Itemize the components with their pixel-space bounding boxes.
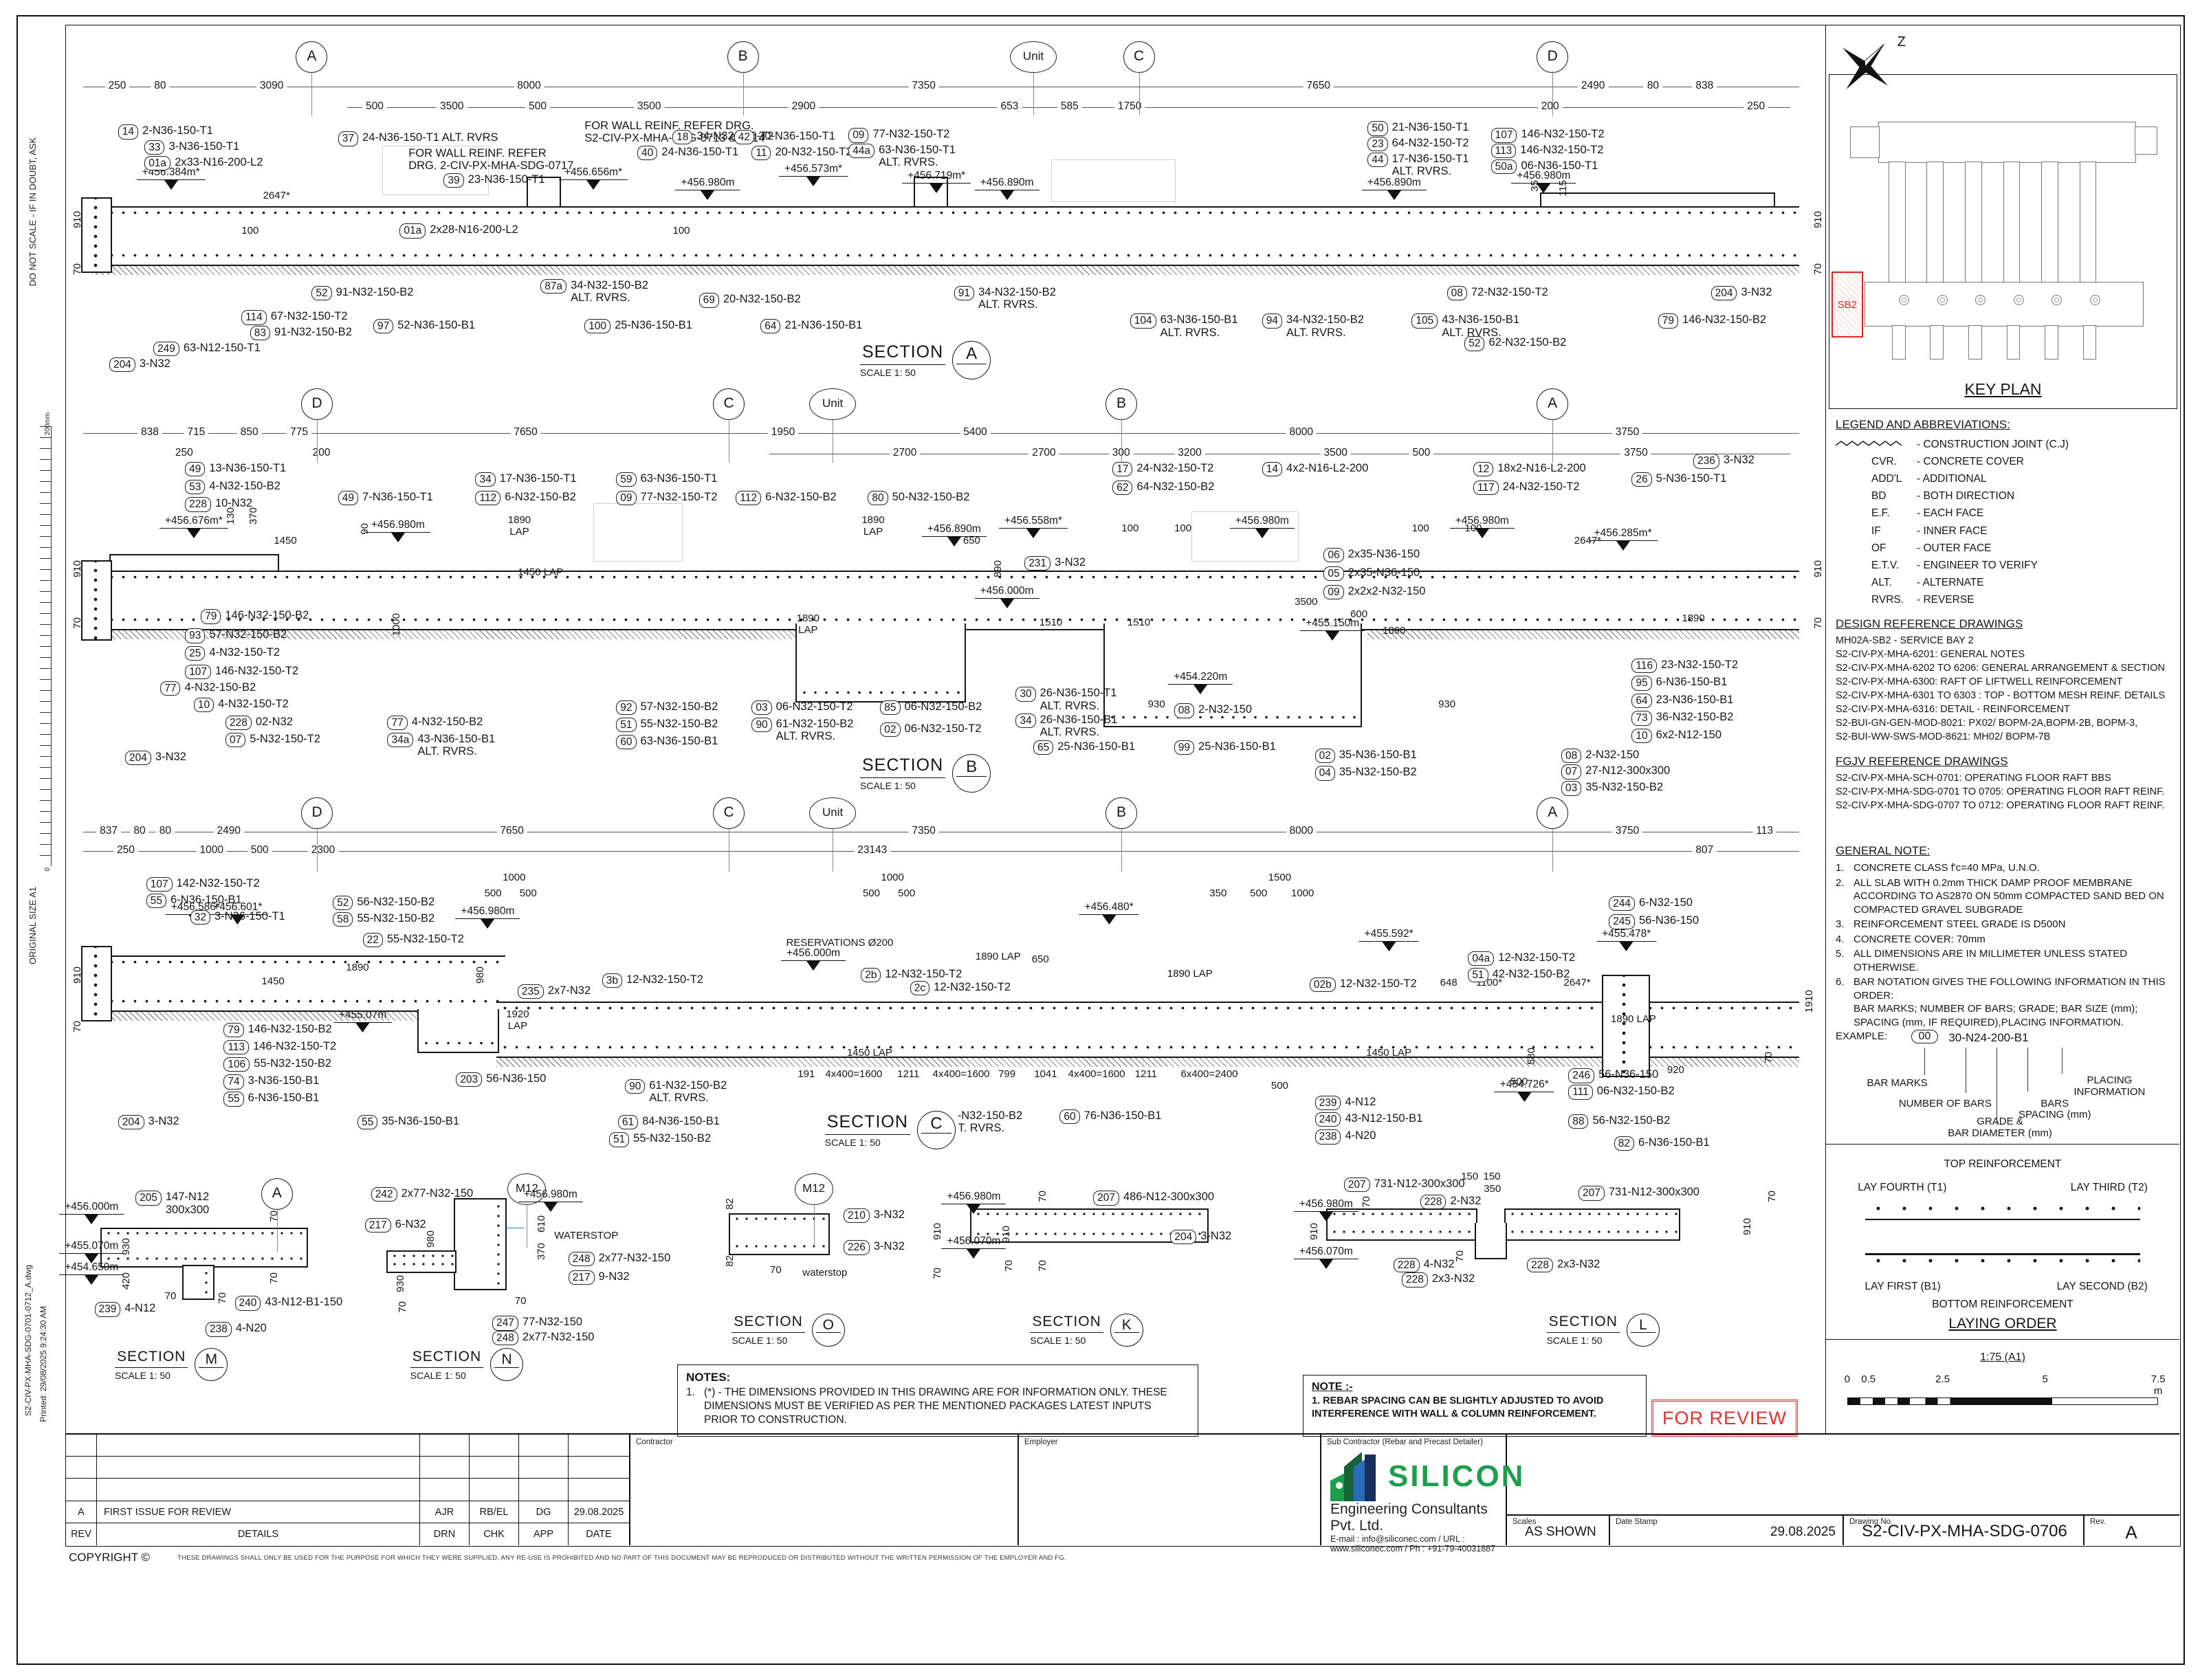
revision-table: A FIRST ISSUE FOR REVIEW AJR RB/EL DG 29… — [65, 1433, 630, 1545]
sb2-highlight: SB2 — [1831, 272, 1864, 338]
rebar-callout: 0235-N36-150-B1 — [1315, 749, 1417, 763]
rebar-callout: 6525-N36-150-B1 — [1033, 740, 1135, 755]
for-review-stamp: FOR REVIEW — [1651, 1400, 1798, 1437]
dimension-text: 799 — [998, 1069, 1015, 1081]
dimension-text: WATERSTOP — [554, 1230, 618, 1242]
dimension-text: 1890 LAP — [508, 515, 531, 538]
dimension-text: 1890 LAP — [1611, 1014, 1656, 1026]
dimension-text: 610 — [536, 1215, 548, 1233]
ruler-top-label: 200mm — [44, 412, 52, 435]
reference-line: S2-CIV-PX-MHA-SDG-0707 TO 0712: OPERATIN… — [1836, 799, 2178, 813]
dimension-text: 150 — [1483, 1171, 1500, 1183]
example-spacing: BARS SPACING (mm) — [2018, 1098, 2091, 1121]
rebar-callout: 207731-N12-300x300 — [1578, 1186, 1699, 1200]
dimension-text: 70 — [1813, 263, 1825, 275]
elevation-marker: +456.980m — [941, 1191, 1006, 1214]
rebar-callout: 062x35-N36-150 — [1323, 548, 1420, 562]
reference-line: S2-CIV-PX-MHA-6300: RAFT OF LIFTWELL REI… — [1836, 675, 2178, 689]
rebar-callout: 2282x3-N32 — [1402, 1272, 1475, 1287]
rebar-callout: 5155-N32-150-B2 — [616, 718, 718, 732]
dimension-text: 70 — [1361, 1196, 1373, 1208]
rev-value: A — [2090, 1522, 2172, 1543]
rebar-callout: 142-N36-150-T1 — [118, 124, 213, 139]
dimension-text: 500 — [1250, 888, 1267, 900]
dimension-text: 500 — [1271, 1081, 1288, 1092]
legend-item: CVR.- CONCRETE COVER — [1836, 453, 2174, 470]
dimension-text: 100 — [1412, 523, 1429, 535]
rebar-callout: 2179-N32 — [569, 1270, 630, 1285]
rebar-callout: 2394-N12 — [1315, 1096, 1376, 1110]
rebar-callout: 0977-N32-150-T2 — [616, 491, 717, 505]
rebar-callout: 9257-N32-150-B2 — [616, 700, 718, 715]
rebar-callout: 7336-N32-150-B2 — [1631, 711, 1733, 725]
dimension-text: 648 — [1440, 977, 1457, 989]
rebar-callout: 5262-N32-150-B2 — [1464, 336, 1566, 351]
dimension-text: 70 — [72, 617, 84, 629]
dimension-text: 1500 — [1268, 872, 1291, 884]
key-plan-title: KEY PLAN — [1829, 380, 2177, 399]
bar-code: 30-N24-200-B1 — [1948, 1031, 2028, 1045]
section-l-title: SECTIONSCALE 1: 50 L — [1544, 1312, 1662, 1348]
drawing-sheet: DO NOT SCALE - IF IN DOUBT, ASK 200mm 0 … — [0, 0, 2200, 1680]
rebar-callout: 2282-N32 — [1420, 1195, 1482, 1209]
rebar-callout: 6076-N36-150-B1 — [1059, 1109, 1161, 1124]
rebar-callout: 1126-N32-150-B2 — [736, 491, 836, 505]
subcontractor-label: Sub Contractor (Rebar and Precast Detail… — [1327, 1438, 1483, 1446]
copyright-row: COPYRIGHT © THESE DRAWINGS SHALL ONLY BE… — [69, 1551, 1650, 1565]
dimension-text: 70 — [72, 1021, 84, 1032]
reference-line: S2-CIV-PX-MHA-SDG-0701 TO 0705: OPERATIN… — [1836, 785, 2178, 799]
grid-bubble: B — [1105, 388, 1137, 420]
scale-bar-block: 1:75 (A1) 00.52.557.5 m — [1826, 1338, 2179, 1433]
legend-item: BD- BOTH DIRECTION — [1836, 487, 2174, 505]
dimension-text: 930 — [395, 1275, 407, 1292]
dimension-text: 3500 — [1295, 597, 1317, 608]
dimension-text: 2647* — [263, 190, 290, 202]
rebar-callout: 2c12-N32-150-T2 — [910, 981, 1011, 995]
example-placing: PLACING INFORMATION — [2073, 1075, 2145, 1098]
grid-bubble: C — [1123, 41, 1155, 73]
elevation-marker: +456.890m — [1362, 177, 1427, 200]
reference-line: S2-CIV-PX-MHA-6301 TO 6303 : TOP - BOTTO… — [1836, 689, 2178, 703]
raft-band — [91, 571, 1798, 630]
bar-notation-example: 00 30-N24-200-B1 BAR MARKS NUMBER OF BAR… — [1836, 1030, 2178, 1144]
dimension-text: 1450 LAP — [1366, 1048, 1411, 1059]
rebar-callout: 052x35-N36-150 — [1323, 566, 1420, 581]
dimension-text: 1890 LAP — [1167, 969, 1213, 980]
detail-section-n: M12 +456.980m 2422x77-N32-1502176-N32248… — [357, 1169, 715, 1416]
rebar-callout: 2446-N32-150 — [1609, 896, 1693, 911]
rebar-callout: 0872-N32-150-T2 — [1447, 286, 1548, 300]
edge-file-name: S2-CIV-PX-MHA-SDG-0701-0712_A.dwg — [23, 1265, 33, 1416]
dimension-text: 500 — [898, 888, 915, 900]
rebar-callout: 79146-N32-150-B2 — [201, 609, 309, 623]
rebar-callout: 6423-N36-150-B1 — [1631, 694, 1733, 708]
dimension-text: 70 — [1763, 1052, 1775, 1063]
rebar-callout: 497-N36-150-T1 — [338, 491, 433, 505]
scale-bar — [1847, 1397, 2158, 1405]
grid-bubble: Unit — [809, 388, 856, 420]
dimension-text: 70 — [269, 1272, 280, 1284]
grid-bubble: A — [296, 41, 327, 73]
rebar-callout: 9134-N32-150-B2 ALT. RVRS. — [954, 286, 1056, 311]
raft-band — [91, 206, 1798, 266]
dimension-text: 70 — [1037, 1191, 1049, 1202]
scale-ratio: 1:75 (A1) — [1980, 1351, 2025, 1364]
dimension-text: 100 — [241, 225, 258, 237]
section-k-title: SECTIONSCALE 1: 50 K — [1027, 1312, 1145, 1348]
dimension-text: 1890 — [1682, 613, 1704, 625]
rebar-callout: FOR WALL REINF. REFER DRG. 2-CIV-PX-MHA-… — [408, 147, 573, 173]
scale-tick: 7.5 m — [2148, 1374, 2169, 1397]
ruler-bottom-label: 0 — [44, 867, 52, 872]
grid-bubble: B — [727, 41, 759, 73]
rebar-callout: 22802-N32 — [225, 716, 293, 730]
legend-item: IF- INNER FACE — [1836, 522, 2174, 540]
scale-tick: 2.5 — [1935, 1374, 1950, 1386]
rebar-callout: 22810-N32 — [185, 497, 252, 511]
dimension-text: 920 — [1667, 1065, 1684, 1076]
legend-item: ADD'L- ADDITIONAL — [1836, 470, 2174, 487]
rebar-callout: 5142-N32-150-B2 — [1468, 968, 1570, 982]
notes-box: NOTES: 1. (*) - THE DIMENSIONS PROVIDED … — [677, 1364, 1198, 1437]
rebar-callout: 2363-N32 — [1693, 454, 1754, 468]
elevation-marker: +456.000m — [975, 585, 1039, 608]
rebar-callout: 24963-N12-150-T1 — [153, 342, 261, 356]
dimension-text: 1000 — [391, 613, 403, 636]
rebar-callout: 6184-N36-150-B1 — [618, 1115, 720, 1129]
rebar-callout: 6920-N32-150-B2 — [699, 293, 801, 307]
dimension-text: 82 — [725, 1198, 736, 1210]
dimension-text: 1000 — [881, 872, 904, 884]
rebar-callout: 3026-N36-150-T1 ALT. RVRS. — [1015, 687, 1116, 712]
rebar-callout: 1126-N32-150-B2 — [475, 491, 575, 505]
rebar-callout: 2422x77-N32-150 — [371, 1187, 473, 1202]
rebar-callout: 104-N32-150-T2 — [194, 698, 289, 712]
dimension-text: 1890 — [346, 962, 368, 974]
section-o-title: SECTIONSCALE 1: 50 O — [729, 1312, 847, 1348]
rebar-callout: 11106-N32-150-B2 — [1568, 1085, 1674, 1099]
rebar-callout: 44a63-N36-150-T1 ALT. RVRS. — [848, 144, 956, 169]
grid-bubble: C — [713, 388, 745, 420]
dimension-text: 980 — [426, 1230, 437, 1248]
rebar-callout: 0977-N32-150-T2 — [848, 128, 949, 142]
rev-details: FIRST ISSUE FOR REVIEW — [96, 1501, 419, 1523]
example-number-of-bars: NUMBER OF BARS — [1899, 1098, 1992, 1110]
elevation-marker: +456.000m — [59, 1201, 124, 1224]
dimension-text: 1450 — [261, 976, 284, 988]
note-box-2: NOTE :- 1. REBAR SPACING CAN BE SLIGHTLY… — [1303, 1375, 1647, 1437]
elevation-marker: +456.980m — [1450, 515, 1515, 538]
rebar-callout: 9061-N32-150-B2 ALT. RVRS. — [751, 718, 853, 743]
rebar-callout: 24556-N36-150 — [1609, 914, 1699, 929]
rebar-callout: 207731-N12-300x300 — [1344, 1178, 1465, 1192]
legend-item: ALT.- ALTERNATE — [1836, 574, 2174, 591]
legend-item: E.F.- EACH FACE — [1836, 505, 2174, 522]
grid-bubble: A — [1537, 388, 1568, 420]
rebar-callout: 20356-N36-150 — [456, 1072, 546, 1087]
dimension-text: 1000 — [1291, 888, 1314, 900]
dimension-text: 100 — [672, 225, 690, 237]
grid-bubble: C — [713, 797, 745, 829]
elevation-marker: +456.070m — [1294, 1246, 1358, 1269]
dimension-text: 1910 — [1804, 990, 1816, 1013]
dimension-text: 370 — [536, 1243, 548, 1260]
scale-tick: 0 — [1845, 1374, 1850, 1386]
reference-line: S2-BUI-GN-GEN-MOD-8021: PX02/ BOPM-2A,BO… — [1836, 716, 2178, 730]
rebar-callout: 2384-N20 — [1315, 1129, 1376, 1144]
rebar-callout: 2176-N32 — [365, 1218, 426, 1233]
rebar-callout: 333-N36-150-T1 — [144, 140, 239, 155]
elevation-marker: +456.480* — [1079, 901, 1139, 925]
rebar-callout: 5535-N36-150-B1 — [357, 1115, 459, 1129]
rebar-callout: 2394-N12 — [95, 1302, 156, 1316]
rebar-callout: 3b12-N32-150-T2 — [602, 973, 703, 988]
rebar-callout: 1218x2-N16-L2-200 — [1473, 462, 1586, 476]
general-note-title: GENERAL NOTE: — [1836, 844, 2178, 858]
legend-item: OF- OUTER FACE — [1836, 540, 2174, 557]
reference-line: S2-BUI-WW-SWS-MOD-8621: MH02/ BOPM-7B — [1836, 730, 2178, 744]
dimension-text: 500 — [863, 888, 880, 900]
rebar-callout: 774-N32-150-B2 — [387, 716, 483, 730]
elevation-marker: +456.980m — [1230, 515, 1295, 538]
grid-bubble: A — [261, 1178, 293, 1210]
dimension-text: 910 — [1813, 211, 1825, 228]
legend-item: RVRS.- REVERSE — [1836, 591, 2174, 608]
construction-joint-symbol — [1836, 436, 1917, 453]
rebar-callout: 2364-N32-150-T2 — [1367, 137, 1468, 151]
rebar-callout: 6421-N36-150-B1 — [760, 319, 862, 333]
rebar-callout: 534-N32-150-B2 — [185, 480, 280, 494]
dimension-text: 980 — [475, 966, 487, 984]
dimension-text: 350 — [1209, 888, 1226, 900]
rev-a: A — [65, 1501, 96, 1523]
elevation-marker: +456.573m* — [779, 163, 848, 186]
section-b: DCUnitBA 8387158507757650195054008000375… — [65, 388, 1825, 797]
rebar-callout: 1120-N32-150-T2 — [751, 146, 852, 160]
rebar-callout: 323-N36-150-T1 — [190, 910, 285, 925]
rebar-callout: 9752-N36-150-B1 — [373, 319, 475, 333]
dimension-text: 910 — [1309, 1223, 1321, 1240]
elevation-marker: +456.980m — [455, 905, 520, 929]
section-m-title: SECTIONSCALE 1: 50 M — [112, 1347, 230, 1382]
elevation-marker: +454.220m — [1168, 671, 1233, 694]
rebar-callout: 774-N32-150-B2 — [160, 681, 256, 696]
dimension-text: waterstop — [802, 1268, 847, 1279]
rebar-callout: 10655-N32-150-B2 — [223, 1057, 331, 1072]
elevation-marker: +456.000m — [781, 947, 846, 971]
section-a-title: SECTIONSCALE 1: 50 A — [857, 340, 993, 381]
scales-value: AS SHOWN — [1512, 1525, 1609, 1540]
rebar-callout: 2482x77-N32-150 — [569, 1252, 670, 1266]
raft-band-left — [91, 955, 505, 1012]
dimension-text: 1510 — [1127, 617, 1150, 629]
dimension-text: 650 — [1032, 954, 1049, 966]
rebar-callout: 556-N36-150-B1 — [223, 1092, 319, 1106]
rebar-callout: 9434-N32-150-B2 ALT. RVRS. — [1262, 313, 1364, 339]
dimension-text: 1920 LAP — [506, 1009, 529, 1032]
dimension-text: 580 — [1526, 1048, 1538, 1065]
rebar-callout: 6063-N36-150-B1 — [616, 735, 718, 749]
edge-do-not-scale: DO NOT SCALE - IF IN DOUBT, ASK — [27, 137, 38, 286]
rebar-callout: 10463-N36-150-B1 ALT. RVRS. — [1130, 313, 1238, 339]
dimension-text: 70 — [1037, 1260, 1049, 1272]
design-refs-block: DESIGN REFERENCE DRAWINGS MH02A-SB2 - SE… — [1836, 617, 2178, 744]
general-note-item: 6.BAR NOTATION GIVES THE FOLLOWING INFOR… — [1836, 975, 2178, 1029]
contractor-label: Contractor — [636, 1438, 673, 1446]
elevation-marker: +456.285m* — [1589, 527, 1658, 551]
dimension-text: 1000 — [503, 872, 525, 884]
dimension-text: 890 — [993, 560, 1004, 577]
rebar-callout: 2043-N32 — [109, 357, 170, 372]
dimension-text: 6x400=2400 — [1181, 1069, 1238, 1081]
legend-title: LEGEND AND ABBREVIATIONS: — [1836, 418, 2174, 432]
grid-bubble: M12 — [795, 1173, 833, 1205]
dimension-text: 191 — [797, 1069, 815, 1081]
rebar-callout: 24656-N36-150 — [1568, 1068, 1658, 1083]
section-n-title: SECTIONSCALE 1: 50 N — [408, 1347, 526, 1382]
rebar-callout: 743-N36-150-B1 — [223, 1074, 319, 1089]
rebar-callout: 04a12-N32-150-T2 — [1468, 951, 1575, 966]
rebar-callout: 4913-N36-150-T1 — [185, 462, 286, 476]
rebar-callout: 5291-N32-150-B2 — [311, 286, 413, 300]
rebar-callout: 9925-N36-150-B1 — [1174, 740, 1276, 755]
rebar-callout: 3923-N36-150-T1 — [443, 173, 544, 188]
reference-line: S2-CIV-PX-MHA-6316: DETAIL - REINFORCEME… — [1836, 703, 2178, 716]
rebar-callout: 082-N32-150 — [1174, 703, 1252, 718]
elevation-marker: +454.726* — [1495, 1079, 1554, 1102]
edge-printed: Printed: 29/08/2025 9:24:30 AM — [38, 1306, 48, 1422]
dimension-text: 1890 LAP — [797, 613, 819, 636]
elevation-marker: +456.890m — [975, 177, 1039, 200]
rebar-callout: 107142-N32-150-T2 — [146, 877, 260, 892]
dimension-text: 4x400=1600 — [933, 1069, 990, 1081]
dimension-text: 1211 — [897, 1069, 919, 1081]
rebar-callout: 2352x7-N32 — [518, 984, 591, 999]
elevation-marker: +456.980m — [675, 177, 740, 200]
elevation-marker: +455.07m — [333, 1009, 392, 1032]
rebar-callout: 254-N32-150-T2 — [185, 646, 280, 661]
rebar-callout: 8391-N32-150-B2 — [250, 326, 352, 340]
dimension-text: 70 — [1455, 1250, 1466, 1262]
rebar-callout: 107146-N32-150-T2 — [185, 665, 298, 679]
elevation-marker: +456.980m — [366, 519, 430, 542]
rebar-callout: 5155-N32-150-B2 — [609, 1132, 711, 1147]
dimension-text: 1450 LAP — [847, 1048, 892, 1059]
detail-section-m: A +456.000m+455.070m+454.650m 205147-N12… — [65, 1169, 357, 1416]
dimension-text: 1450 — [274, 535, 296, 547]
dimension-text: 1890 LAP — [861, 515, 884, 538]
rebar-callout: 205147-N12 300x300 — [135, 1191, 209, 1216]
general-note-block: GENERAL NOTE: 1.CONCRETE CLASS f'c=40 MP… — [1836, 844, 2178, 1042]
rebar-callout: 2103-N32 — [844, 1208, 905, 1223]
elevation-marker: +455.478* — [1596, 928, 1656, 951]
rebar-callout: 144x2-N16-L2-200 — [1262, 462, 1369, 476]
dimension-text: 4x400=1600 — [825, 1069, 882, 1081]
fgjv-refs-title: FGJV REFERENCE DRAWINGS — [1836, 755, 2178, 769]
dimension-text: 70 — [165, 1291, 177, 1303]
dimension-text: 70 — [269, 1211, 280, 1222]
rebar-callout: 79146-N32-150-B2 — [223, 1023, 331, 1037]
fgjv-refs-block: FGJV REFERENCE DRAWINGS S2-CIV-PX-MHA-SC… — [1836, 755, 2178, 813]
rebar-callout: 3724-N36-150-T1 ALT. RVRS — [338, 131, 498, 146]
elevation-marker: +456.719m* — [902, 170, 971, 193]
dimension-text: 930 — [1148, 699, 1165, 711]
silicon-logo-icon — [1330, 1452, 1381, 1501]
dimension-text: 910 — [72, 966, 84, 984]
dimension-text: 70 — [1813, 617, 1825, 629]
elevation-marker: +456.070m — [941, 1235, 1006, 1259]
rebar-callout: 0206-N32-150-T2 — [880, 722, 981, 737]
general-note-item: 4.CONCRETE COVER: 70mm — [1836, 933, 2178, 947]
general-note-item: 3.REINFORCEMENT STEEL GRADE IS D500N — [1836, 918, 2178, 931]
note2-title: NOTE :- — [1312, 1381, 1638, 1393]
rebar-callout: 2284-N32 — [1394, 1258, 1455, 1272]
section-b-title: SECTIONSCALE 1: 50 B — [857, 753, 993, 794]
grid-bubble: D — [1537, 41, 1568, 73]
elevation-marker: +455.592* — [1359, 928, 1419, 951]
elevation-marker: +456.890m — [922, 523, 987, 546]
scale-tick: 0.5 — [1861, 1374, 1875, 1386]
section-c: DCUnitBA 837808024907650735080003750113 … — [65, 797, 1825, 1182]
rebar-callout: 4024-N36-150-T1 — [637, 146, 738, 160]
rebar-callout: 2313-N32 — [1024, 556, 1086, 571]
dimension-text: 70 — [932, 1268, 944, 1279]
rebar-callout: 10543-N36-150-B1 ALT. RVRS. — [1411, 313, 1519, 339]
rebar-callout: 01a2x33-N16-200-L2 — [144, 156, 263, 170]
rebar-callout: 5963-N36-150-T1 — [616, 472, 717, 487]
rebar-callout: 082-N32-150 — [1561, 749, 1639, 763]
rebar-callout: 11467-N32-150-T2 — [241, 310, 348, 324]
rebar-callout: 34a43-N36-150-B1 ALT. RVRS. — [387, 733, 495, 758]
grid-bubble: Unit — [1010, 41, 1057, 73]
rebar-callout: 50a06-N36-150-T1 — [1491, 159, 1598, 174]
rebar-callout: 9061-N32-150-B2 ALT. RVRS. — [625, 1079, 727, 1105]
dimension-text: 930 — [1438, 699, 1455, 711]
employer-label: Employer — [1024, 1438, 1058, 1446]
dimension-text: 70 — [1004, 1260, 1015, 1272]
bar-mark-oval: 00 — [1911, 1030, 1939, 1043]
rebar-callout: 11623-N32-150-T2 — [1631, 659, 1738, 673]
legend-item: E.T.V.- ENGINEER TO VERIFY — [1836, 557, 2174, 574]
rebar-callout: 0306-N32-150-T2 — [751, 700, 852, 715]
rebar-callout: 8050-N32-150-B2 — [868, 491, 969, 505]
rebar-callout: 5855-N32-150-B2 — [333, 912, 434, 927]
rebar-callout: 2263-N32 — [844, 1240, 905, 1255]
dimension-text: 1450 LAP — [518, 567, 563, 579]
rebar-callout: 8856-N32-150-B2 — [1568, 1114, 1670, 1129]
rebar-callout: 79146-N32-150-B2 — [1658, 313, 1766, 328]
rebar-callout: 4220-N36-150-T1 — [734, 130, 835, 144]
elevation-marker: +455.070m — [59, 1240, 124, 1263]
laying-order-diagram: TOP REINFORCEMENT LAY FOURTH (T1) LAY TH… — [1826, 1144, 2179, 1340]
reference-line: S2-CIV-PX-MHA-6201: GENERAL NOTES — [1836, 648, 2178, 661]
rebar-callout: 0335-N32-150-B2 — [1561, 781, 1663, 795]
dimension-text: 500 — [485, 888, 502, 900]
dimension-text: 1890 LAP — [976, 951, 1021, 963]
rebar-callout: 24777-N32-150 — [492, 1316, 582, 1330]
reference-line: S2-CIV-PX-MHA-6202 TO 6206: GENERAL ARRA… — [1836, 661, 2178, 675]
right-panel: Z SB2 KEY PLAN LEGEND AND AB — [1825, 25, 2180, 1433]
rebar-callout: 113146-N32-150-T2 — [223, 1040, 336, 1054]
rebar-callout: 2043-N32 — [1170, 1230, 1231, 1244]
margin-ruler — [40, 426, 52, 866]
dimension-text: 70 — [770, 1265, 782, 1276]
elevation-marker: +456.980m — [518, 1189, 583, 1212]
rebar-callout: 3417-N36-150-T1 — [475, 472, 576, 487]
rebar-callout: 3426-N36-150-B1 ALT. RVRS. — [1015, 714, 1117, 739]
rebar-callout: 0727-N12-300x300 — [1561, 764, 1670, 779]
